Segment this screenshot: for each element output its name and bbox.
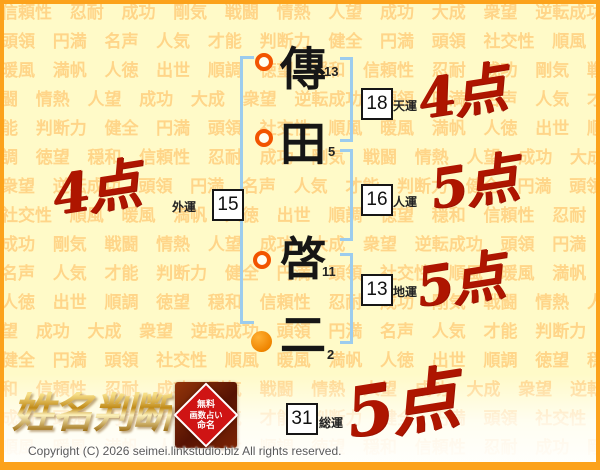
seal-text: 無料 画数占い 命名 [175,382,237,448]
site-logo-link[interactable]: 姓名判断 [12,392,172,434]
jinun-label: 人運 [393,193,417,210]
name-char-1: 傳 [275,44,331,94]
jinun-bracket [340,149,353,241]
tenun-value-box: 18 [361,88,393,120]
seal-line-2: 画数占い [189,410,222,420]
souun-value-box: 31 [286,403,318,435]
gaiun-label: 外運 [172,198,196,215]
seimei-handan-result-page: 信頼性 忍耐 成功 剛気 戦闘 情熱 人望 成功 大成 衆望 逆転成功 頭領 円… [0,0,600,470]
tenun-score: 4点 [414,60,507,127]
gaiun-value-box: 15 [212,189,244,221]
jinun-score: 5点 [426,150,519,217]
stroke-count-1: 13 [324,64,338,79]
stroke-count-4: 2 [327,347,334,362]
souun-label: 総運 [319,414,343,431]
char-marker-ring-2 [255,129,273,147]
char-marker-ring-1 [255,53,273,71]
copyright-text: Copyright (C) 2026 seimei.linkstudio.biz… [28,444,341,458]
free-kakusu-seal: 無料 画数占い 命名 [175,382,237,448]
name-char-4: 二 [275,310,331,360]
seal-line-1: 無料 [197,399,215,410]
stroke-count-2: 5 [328,144,335,159]
jinun-value-box: 16 [361,184,393,216]
seal-line-3: 命名 [197,420,215,431]
chiun-score: 5点 [412,248,505,315]
chiun-bracket [340,253,353,344]
souun-score: 5点 [341,364,460,448]
tenun-label: 天運 [393,97,417,114]
tenun-bracket [340,57,353,142]
chiun-label: 地運 [393,283,417,300]
stroke-count-3: 11 [322,264,336,279]
gaiun-score: 4点 [48,156,141,223]
chiun-value-box: 13 [361,274,393,306]
char-marker-ring-3 [253,251,271,269]
char-marker-filled-4 [251,331,272,352]
name-char-2: 田 [275,119,331,169]
